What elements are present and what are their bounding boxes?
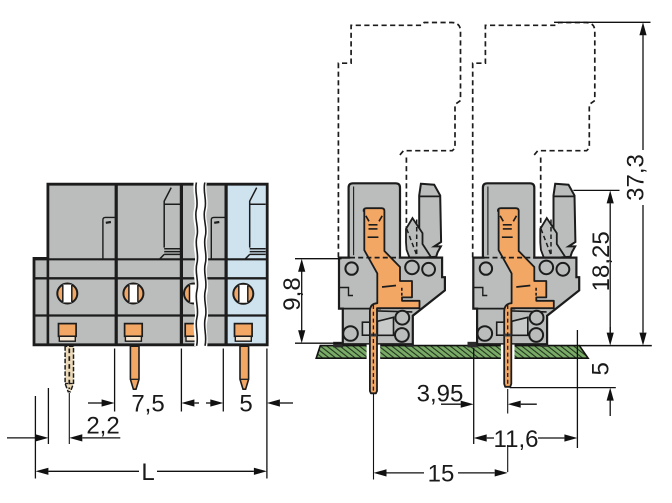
svg-text:11,6: 11,6 <box>494 426 539 453</box>
svg-text:7,5: 7,5 <box>131 391 164 418</box>
svg-text:15: 15 <box>428 461 455 488</box>
svg-text:5: 5 <box>588 362 615 375</box>
svg-text:L: L <box>141 459 154 486</box>
svg-text:18,25: 18,25 <box>588 231 615 291</box>
svg-text:5: 5 <box>239 391 252 418</box>
svg-text:37,3: 37,3 <box>623 154 650 201</box>
svg-text:2,2: 2,2 <box>86 413 119 440</box>
svg-text:9,8: 9,8 <box>279 277 306 310</box>
svg-text:3,95: 3,95 <box>417 381 464 408</box>
